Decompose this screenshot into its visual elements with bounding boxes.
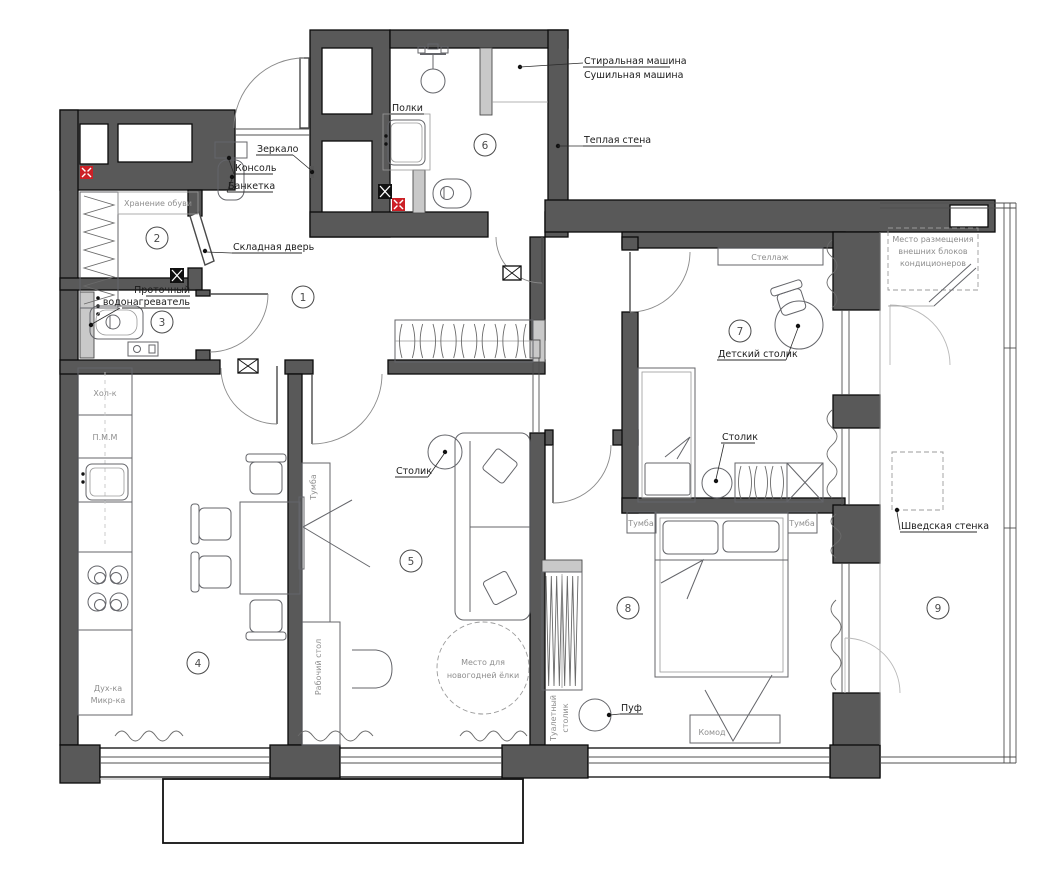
bathroom [383,44,548,208]
kitchen [78,368,300,715]
room-number-1: 1 [300,292,307,304]
label-table-kids-room: Столик [722,432,758,443]
kids-bed [638,368,695,502]
kids-wardrobe [735,463,787,502]
label-folding-door: Складная дверь [233,242,315,253]
vent-box-icon [238,359,258,373]
sink [388,120,425,165]
label-dresser: Комод [698,728,726,737]
label-ac-3: кондиционеров [900,259,966,268]
label-oven: Дух-ка [94,684,122,693]
vent-box-icon [503,266,521,280]
label-ac-1: Место размещения [892,235,973,244]
room-number-4: 4 [195,658,202,670]
label-dryer: Сушильная машина [584,70,683,81]
room-number-9: 9 [935,603,942,615]
label-fridge: Хол-к [93,389,116,398]
label-shelves: Полки [392,103,423,114]
entrance-door-arc [234,58,304,128]
pillow [723,521,779,552]
blanket-fold [665,437,690,459]
swedish-wall-area [892,452,943,510]
label-microwave: Микр-ка [91,696,126,705]
floor-plan-page: Стиральная машина Сушильная машина Тепла… [0,0,1043,888]
vent-red-icon [392,198,405,211]
label-dishwasher: П.М.М [93,433,118,442]
room-number-3: 3 [159,317,166,329]
bedroom [542,512,817,743]
label-warm-wall: Теплая стена [583,135,651,146]
washing-machine-3 [90,306,143,339]
vent-red-icon [80,166,93,179]
toilet-partition [413,170,425,213]
label-shoe-storage: Хранение обуви [124,199,192,208]
walls [60,30,995,783]
window-living [340,748,502,777]
label-tree-2: новогодней ёлки [447,671,519,680]
dining-chairs [191,454,286,640]
shower-partition [480,48,492,115]
blanket-fold [661,560,703,599]
label-ac-2: внешних блоков [898,247,968,256]
label-swedish-wall: Шведская стенка [901,521,989,532]
pillow [482,448,518,484]
label-tv-stand: Тумба [309,474,318,501]
tree-place [437,622,529,714]
room-number-7: 7 [737,326,744,338]
label-table-living: Столик [396,466,432,477]
label-nightstand-left: Тумба [627,519,654,528]
label-heater-1: Проточный [134,285,190,296]
room-number-6: 6 [482,140,489,152]
label-desk: Рабочий стол [314,639,323,695]
drain-box [128,342,158,356]
room-number-5: 5 [408,556,415,568]
folding-door [190,212,214,265]
kids-pillow [645,463,690,495]
stove [88,566,128,611]
label-bench: Банкетка [228,181,275,192]
window-bedroom [588,748,830,777]
kids-chair [770,279,810,317]
vent-black-icon [170,268,184,283]
label-nightstand-right: Тумба [788,519,815,528]
window-kitchen [100,748,270,777]
label-shelving: Стеллаж [751,253,789,262]
entrance-door-leaf [300,58,309,128]
room-number-8: 8 [625,603,632,615]
desk-chair [352,650,392,688]
doors [190,58,950,693]
pouf [579,699,611,731]
kitchen-sink [86,464,128,500]
label-mirror: Зеркало [257,144,299,155]
bed [655,513,788,677]
balcony-outline [100,779,523,843]
label-pouf: Пуф [621,703,642,714]
pillow [482,570,517,605]
label-vanity-2: столик [561,703,570,732]
pillow [663,521,718,554]
label-heater-2: водонагреватель [103,297,191,308]
toilet [433,179,471,208]
kids-room [638,248,823,502]
label-washer: Стиральная машина [584,56,687,67]
label-console: Консоль [235,163,277,174]
shower-head-icon [421,69,445,93]
label-vanity-1: Туалетный [549,695,558,742]
label-tree-1: Место для [461,658,505,667]
small-table-kids [702,468,732,498]
label-kids-table: Детский столик [718,349,798,360]
loggia [888,228,978,510]
living-room [299,433,530,745]
floor-plan-drawing: Стиральная машина Сушильная машина Тепла… [0,0,1043,888]
room-number-2: 2 [154,233,161,245]
vent-black-icon [378,184,392,199]
